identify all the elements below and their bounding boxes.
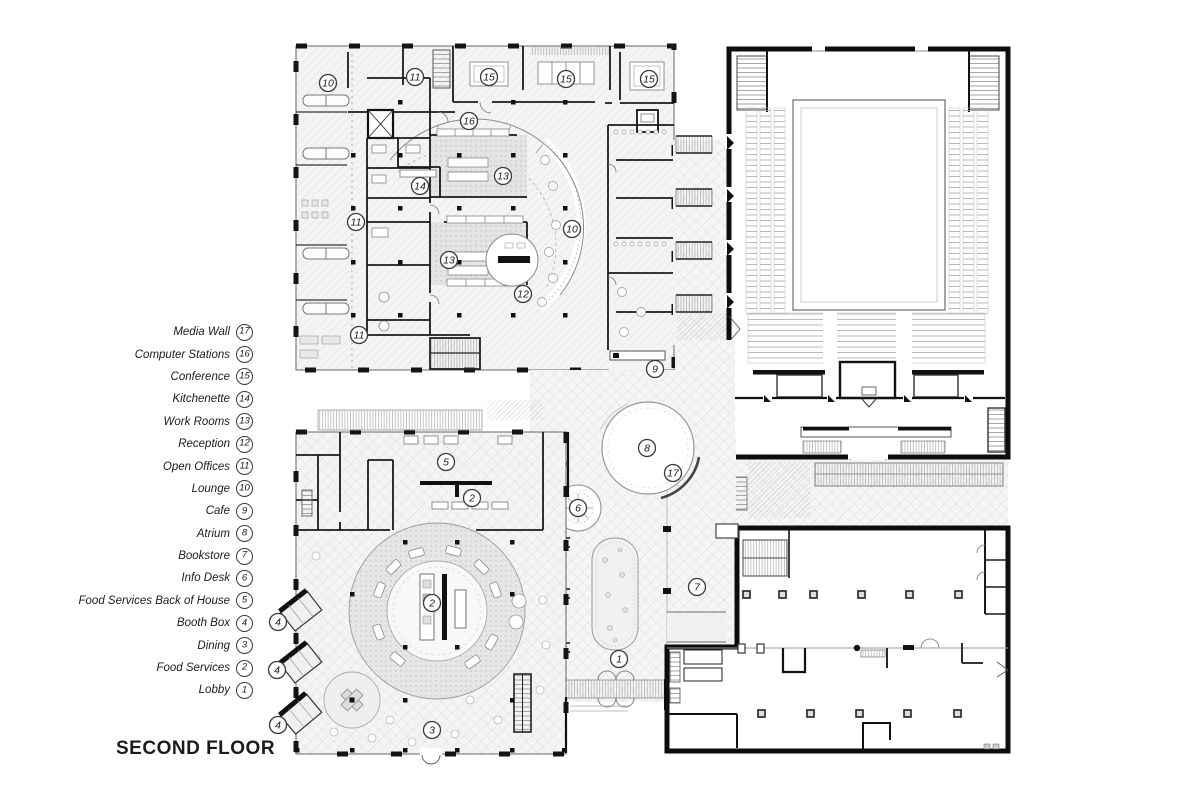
- plan-marker-5: 5: [438, 454, 455, 471]
- plan-marker-3: 3: [424, 722, 441, 739]
- plan-marker-11: 11: [351, 327, 368, 344]
- vent-ticks: [530, 47, 610, 55]
- svg-text:14: 14: [414, 181, 426, 193]
- svg-text:15: 15: [483, 72, 495, 84]
- legend-number-circle: 13: [236, 413, 253, 430]
- legend: Media Wall17Computer Stations16Conferenc…: [0, 321, 253, 702]
- svg-text:17: 17: [667, 468, 680, 480]
- trellis: [748, 462, 810, 518]
- trellis: [487, 400, 543, 420]
- entry-box: [716, 524, 738, 538]
- plan-marker-17: 17: [665, 465, 682, 482]
- legend-number: 13: [239, 417, 250, 427]
- legend-item-12: Reception12: [0, 433, 253, 455]
- legend-number: 17: [239, 327, 250, 337]
- elevator-icon: [637, 110, 658, 132]
- svg-text:11: 11: [354, 330, 365, 342]
- aisle: [896, 311, 912, 365]
- walkway: [667, 612, 726, 642]
- legend-item-14: Kitchenette14: [0, 388, 253, 410]
- plan-marker-4: 4: [270, 717, 287, 734]
- svg-text:13: 13: [497, 171, 509, 183]
- aisle: [823, 311, 837, 365]
- plan-marker-15: 15: [481, 69, 498, 86]
- connector-link: [673, 136, 728, 345]
- legend-number-circle: 5: [236, 592, 253, 609]
- stair-icon: [302, 490, 312, 516]
- legend-item-1: Lobby1: [0, 679, 253, 701]
- legend-label: Info Desk: [181, 572, 236, 584]
- legend-label: Computer Stations: [135, 349, 236, 361]
- kitchenette-counter: [400, 170, 436, 177]
- plan-marker-14: 14: [412, 178, 429, 195]
- plan-marker-8: 8: [639, 440, 656, 457]
- svg-text:6: 6: [575, 503, 581, 515]
- terrace: [729, 460, 1008, 526]
- legend-number: 9: [242, 506, 247, 516]
- svg-text:4: 4: [275, 720, 281, 732]
- plan-marker-9: 9: [647, 361, 664, 378]
- terrace-balustrade: [815, 463, 1003, 486]
- dining-stair: [514, 674, 531, 732]
- legend-number-circle: 6: [236, 570, 253, 587]
- legend-item-6: Info Desk6: [0, 567, 253, 589]
- svg-text:1: 1: [616, 654, 622, 666]
- legend-number: 15: [239, 372, 250, 382]
- legend-number: 3: [242, 640, 247, 650]
- legend-label: Open Offices: [163, 461, 236, 473]
- svg-text:4: 4: [275, 617, 281, 629]
- stair-icon: [737, 56, 767, 110]
- legend-label: Lobby: [199, 684, 236, 696]
- plan-marker-10: 10: [564, 221, 581, 238]
- svg-text:15: 15: [643, 74, 655, 86]
- legend-item-3: Dining3: [0, 634, 253, 656]
- plan-marker-15: 15: [558, 71, 575, 88]
- floor-title: SECOND FLOOR: [116, 738, 275, 760]
- legend-item-11: Open Offices11: [0, 455, 253, 477]
- plan-marker-11: 11: [348, 214, 365, 231]
- legend-label: Bookstore: [178, 550, 236, 562]
- plan-marker-1: 1: [611, 651, 628, 668]
- plan-marker-16: 16: [461, 113, 478, 130]
- legend-item-13: Work Rooms13: [0, 411, 253, 433]
- legend-item-4: Booth Box4: [0, 612, 253, 634]
- legend-item-5: Food Services Back of House5: [0, 590, 253, 612]
- pinwheel-table: [324, 672, 380, 728]
- plan-marker-15: 15: [641, 71, 658, 88]
- legend-number-circle: 17: [236, 324, 253, 341]
- svg-text:9: 9: [652, 364, 658, 376]
- plan-marker-11: 11: [407, 69, 424, 86]
- svg-text:10: 10: [566, 224, 578, 236]
- legend-number-circle: 3: [236, 637, 253, 654]
- legend-label: Lounge: [192, 483, 236, 495]
- legend-item-2: Food Services2: [0, 657, 253, 679]
- svg-text:10: 10: [322, 78, 334, 90]
- svg-text:11: 11: [410, 72, 421, 84]
- legend-number: 10: [239, 484, 250, 494]
- legend-number-circle: 8: [236, 525, 253, 542]
- svg-text:13: 13: [443, 255, 455, 267]
- legend-number: 11: [240, 461, 250, 471]
- legend-number: 16: [239, 349, 250, 359]
- legend-number: 1: [242, 685, 247, 695]
- legend-number: 5: [242, 596, 247, 606]
- reception-desk: [486, 234, 538, 286]
- svg-text:3: 3: [429, 725, 435, 737]
- legend-number-circle: 15: [236, 368, 253, 385]
- legend-number: 14: [239, 394, 250, 404]
- plan-marker-2: 2: [464, 490, 481, 507]
- plan-marker-2: 2: [424, 595, 441, 612]
- legend-label: Dining: [197, 640, 236, 652]
- svg-text:12: 12: [517, 289, 529, 301]
- legend-label: Booth Box: [177, 617, 236, 629]
- legend-number-circle: 7: [236, 548, 253, 565]
- legend-label: Food Services Back of House: [79, 595, 237, 607]
- plan-marker-13: 13: [495, 168, 512, 185]
- legend-number-circle: 10: [236, 480, 253, 497]
- svg-text:2: 2: [468, 493, 475, 505]
- canopy: [318, 410, 482, 430]
- lobby-pond: [592, 538, 638, 650]
- legend-label: Media Wall: [173, 326, 236, 338]
- legend-item-16: Computer Stations16: [0, 343, 253, 365]
- legend-number: 12: [239, 439, 250, 449]
- plan-marker-12: 12: [515, 286, 532, 303]
- plan-marker-13: 13: [441, 252, 458, 269]
- legend-number-circle: 16: [236, 346, 253, 363]
- legend-label: Work Rooms: [164, 416, 236, 428]
- svg-text:8: 8: [644, 443, 650, 455]
- elevator-icon: [368, 110, 393, 138]
- svg-text:4: 4: [274, 665, 280, 677]
- svg-text:2: 2: [428, 598, 435, 610]
- legend-item-9: Cafe9: [0, 500, 253, 522]
- legend-number-circle: 11: [236, 458, 253, 475]
- dining-wing: [278, 400, 566, 764]
- svg-text:16: 16: [463, 116, 475, 128]
- legend-label: Atrium: [197, 528, 236, 540]
- legend-item-8: Atrium8: [0, 523, 253, 545]
- plan-marker-6: 6: [570, 500, 587, 517]
- svg-text:5: 5: [443, 457, 449, 469]
- legend-number: 4: [242, 618, 247, 628]
- legend-number: 7: [242, 551, 247, 561]
- auditorium: [725, 45, 1008, 471]
- floor-plan-sheet: 1011151515161413111013121198176752213444…: [0, 0, 1200, 800]
- legend-number-circle: 1: [236, 682, 253, 699]
- atrium-void: [793, 100, 945, 310]
- legend-label: Cafe: [206, 505, 236, 517]
- servery: [349, 523, 526, 699]
- svg-text:15: 15: [560, 74, 572, 86]
- legend-label: Food Services: [156, 662, 236, 674]
- legend-number-circle: 14: [236, 391, 253, 408]
- stair-icon: [430, 338, 480, 369]
- legend-number-circle: 12: [236, 436, 253, 453]
- legend-number: 6: [242, 573, 247, 583]
- legend-item-17: Media Wall17: [0, 321, 253, 343]
- legend-item-10: Lounge10: [0, 478, 253, 500]
- stair-icon: [969, 56, 999, 110]
- svg-text:11: 11: [351, 217, 362, 229]
- plan-marker-4: 4: [270, 614, 287, 631]
- legend-item-15: Conference15: [0, 366, 253, 388]
- plan-marker-10: 10: [320, 75, 337, 92]
- legend-number-circle: 9: [236, 503, 253, 520]
- plan-marker-7: 7: [689, 579, 706, 596]
- legend-number: 8: [242, 528, 247, 538]
- legend-number-circle: 4: [236, 615, 253, 632]
- plan-marker-4: 4: [269, 662, 286, 679]
- legend-number: 2: [242, 663, 247, 673]
- legend-label: Conference: [171, 371, 236, 383]
- legend-label: Reception: [178, 438, 236, 450]
- legend-label: Kitchenette: [172, 393, 236, 405]
- legend-number-circle: 2: [236, 660, 253, 677]
- legend-item-7: Bookstore7: [0, 545, 253, 567]
- booth-box: [278, 588, 322, 734]
